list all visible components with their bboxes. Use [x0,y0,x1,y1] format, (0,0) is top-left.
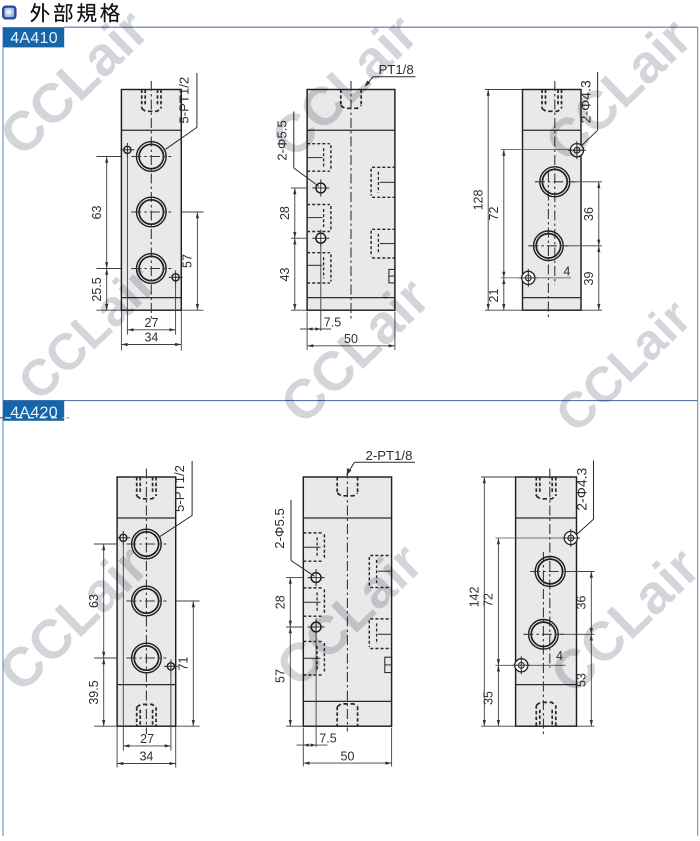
svg-text:128: 128 [471,190,485,211]
svg-text:34: 34 [139,750,153,764]
svg-text:36: 36 [575,596,589,610]
svg-text:71: 71 [177,657,191,671]
svg-text:27: 27 [140,732,154,746]
svg-text:21: 21 [487,289,501,303]
svg-text:2-Φ4.3: 2-Φ4.3 [574,467,590,510]
svg-text:39: 39 [582,272,596,286]
svg-text:28: 28 [274,595,288,609]
svg-text:72: 72 [482,593,496,607]
svg-text:2-Φ5.5: 2-Φ5.5 [272,508,287,549]
svg-text:43: 43 [278,268,292,282]
svg-text:142: 142 [468,587,482,608]
svg-text:4A420: 4A420 [10,404,58,421]
svg-text:36: 36 [582,207,596,221]
svg-text:28: 28 [278,206,292,220]
svg-text:5-PT1/2: 5-PT1/2 [172,465,187,512]
svg-text:34: 34 [144,331,158,345]
svg-text:57: 57 [181,254,195,268]
svg-text:72: 72 [487,207,501,221]
svg-text:4: 4 [563,264,570,278]
svg-text:7.5: 7.5 [319,732,336,746]
svg-text:35: 35 [482,691,496,705]
svg-text:63: 63 [90,206,104,220]
svg-text:50: 50 [341,749,355,763]
svg-text:39.5: 39.5 [87,680,101,704]
svg-text:2-PT1/8: 2-PT1/8 [366,448,413,463]
svg-text:5-PT1/2: 5-PT1/2 [177,77,192,124]
svg-text:27: 27 [145,316,159,330]
svg-text:4A410: 4A410 [10,30,58,47]
